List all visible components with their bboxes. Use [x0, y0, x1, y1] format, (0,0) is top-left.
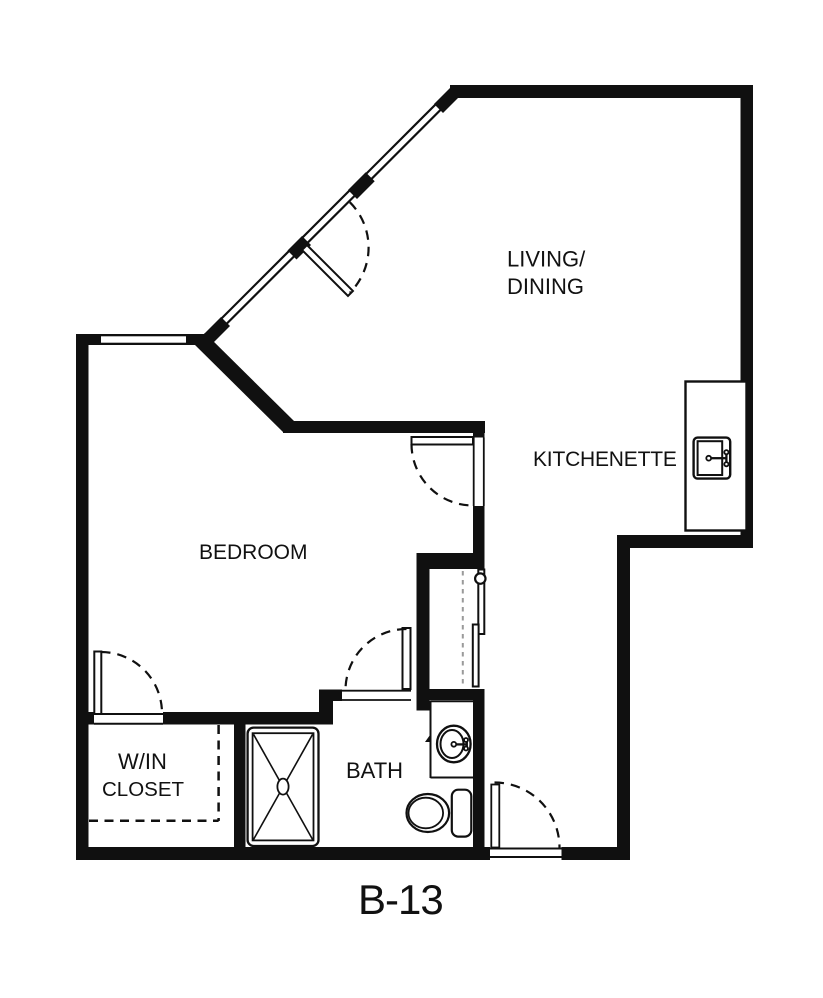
svg-text:W/IN: W/IN	[118, 749, 167, 774]
svg-text:BATH: BATH	[346, 758, 403, 783]
svg-text:BEDROOM: BEDROOM	[199, 541, 308, 564]
svg-text:CLOSET: CLOSET	[102, 778, 184, 801]
svg-text:LIVING/: LIVING/	[507, 247, 586, 272]
svg-text:DINING: DINING	[507, 274, 584, 299]
svg-text:B-13: B-13	[358, 876, 443, 923]
svg-text:KITCHENETTE: KITCHENETTE	[533, 448, 677, 471]
